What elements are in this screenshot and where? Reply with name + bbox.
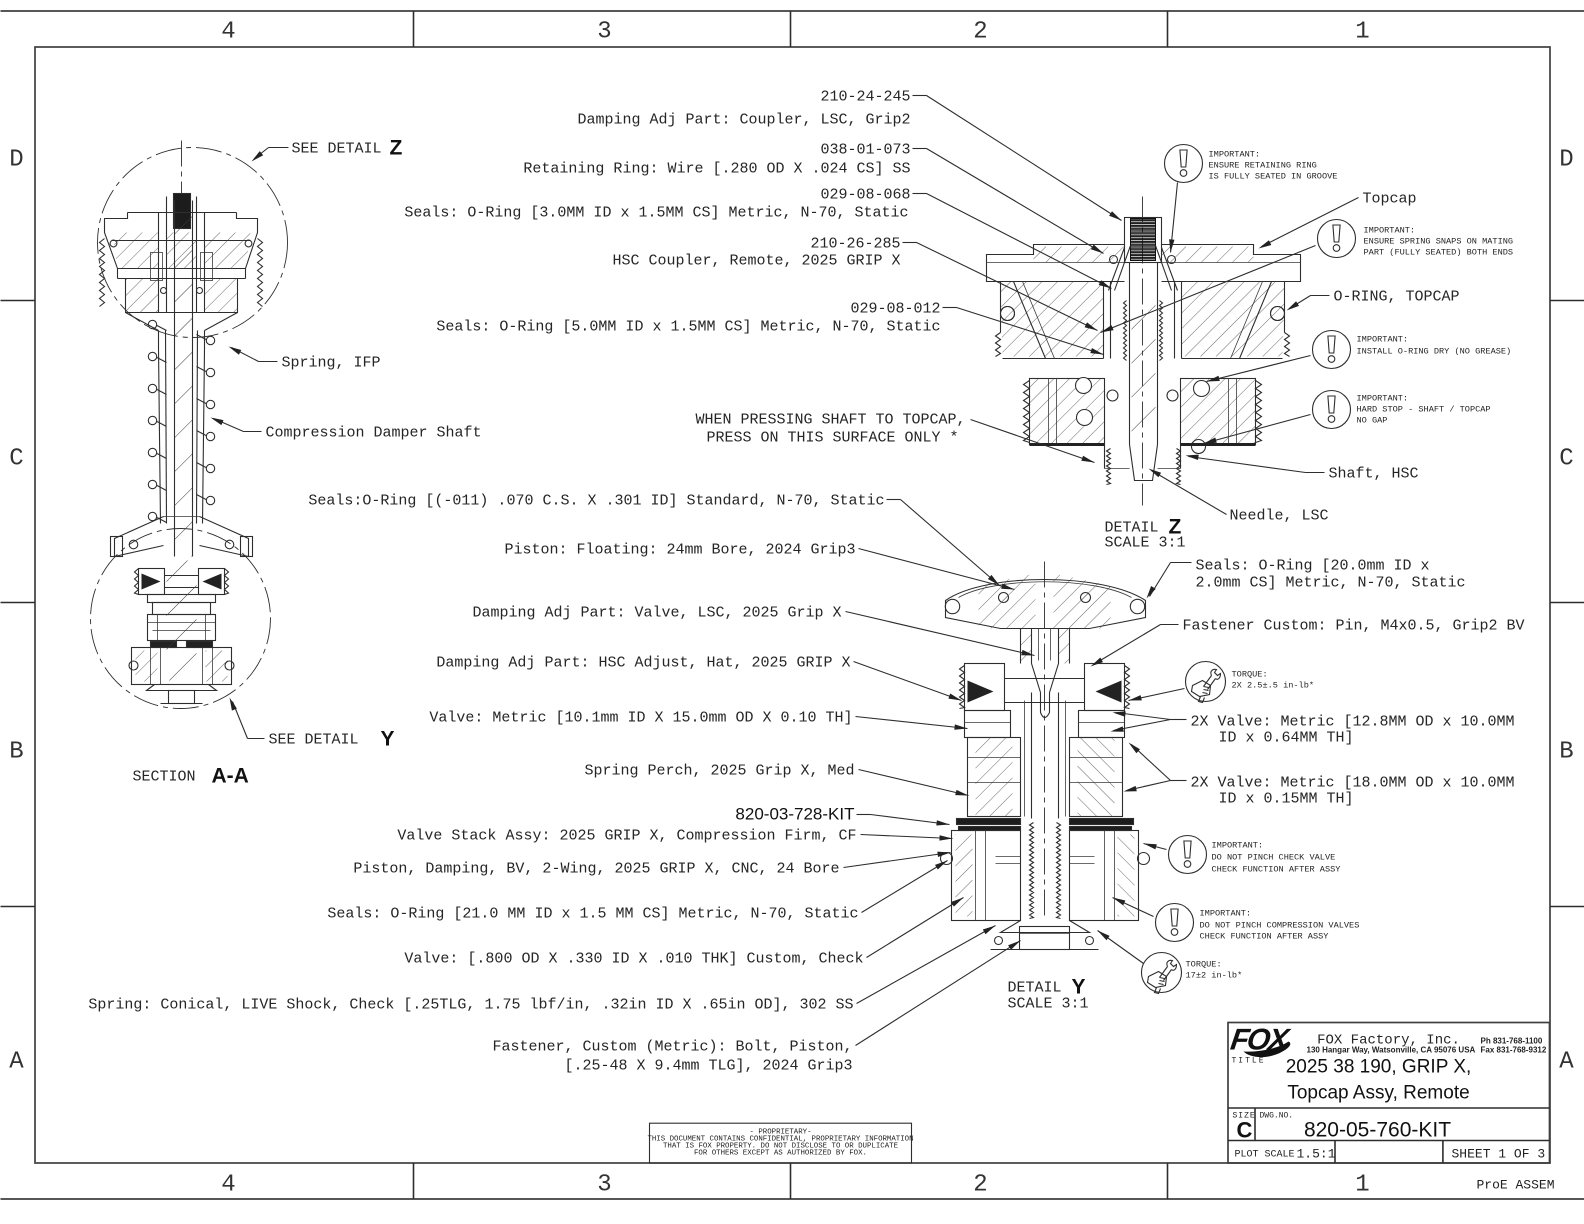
svg-text:NO GAP: NO GAP bbox=[1357, 416, 1388, 426]
svg-text:Damping Adj Part: HSC Adjust,: Damping Adj Part: HSC Adjust, Hat, 2025 … bbox=[436, 655, 850, 672]
svg-text:Fastener, Custom (Metric): Bol: Fastener, Custom (Metric): Bolt, Piston, bbox=[492, 1039, 852, 1056]
svg-text:INSTALL O-RING DRY (NO GREASE): INSTALL O-RING DRY (NO GREASE) bbox=[1357, 347, 1512, 357]
svg-text:C: C bbox=[1237, 1118, 1253, 1143]
svg-text:Valve: [.800 OD X .330 ID X .0: Valve: [.800 OD X .330 ID X .010 THK] Cu… bbox=[404, 951, 863, 968]
svg-text:038-01-073: 038-01-073 bbox=[820, 142, 910, 159]
svg-text:Seals: O-Ring [5.0MM ID x 1.5M: Seals: O-Ring [5.0MM ID x 1.5MM CS] Metr… bbox=[436, 319, 940, 336]
svg-text:2X Valve: Metric [18.0MM OD x: 2X Valve: Metric [18.0MM OD x 10.0MM bbox=[1191, 775, 1515, 792]
svg-text:PRESS ON THIS SURFACE ONLY *: PRESS ON THIS SURFACE ONLY * bbox=[706, 430, 958, 447]
svg-text:IMPORTANT:: IMPORTANT: bbox=[1357, 335, 1409, 345]
svg-text:17±2 in-lb*: 17±2 in-lb* bbox=[1186, 971, 1243, 981]
svg-text:Y: Y bbox=[381, 728, 395, 751]
svg-text:[.25-48 X 9.4mm TLG], 2024 Gri: [.25-48 X 9.4mm TLG], 2024 Grip3 bbox=[564, 1058, 852, 1075]
svg-text:IMPORTANT:: IMPORTANT: bbox=[1200, 909, 1252, 919]
svg-text:C: C bbox=[1559, 446, 1573, 473]
svg-text:Topcap: Topcap bbox=[1363, 191, 1417, 208]
svg-text:Fax 831-768-9312: Fax 831-768-9312 bbox=[1481, 1046, 1547, 1055]
svg-text:SECTION: SECTION bbox=[133, 769, 196, 786]
svg-text:210-24-245: 210-24-245 bbox=[820, 89, 910, 106]
svg-text:DETAIL: DETAIL bbox=[1008, 980, 1062, 997]
svg-text:Fastener Custom: Pin, M4x0.5,: Fastener Custom: Pin, M4x0.5, Grip2 BV bbox=[1183, 618, 1525, 635]
svg-text:Needle, LSC: Needle, LSC bbox=[1230, 508, 1329, 525]
svg-text:Retaining Ring: Wire [.280 OD: Retaining Ring: Wire [.280 OD X .024 CS]… bbox=[523, 161, 910, 178]
svg-text:SHEET 1 OF 3: SHEET 1 OF 3 bbox=[1452, 1147, 1546, 1162]
svg-text:D: D bbox=[9, 147, 23, 174]
svg-text:Spring Perch, 2025 Grip X, Med: Spring Perch, 2025 Grip X, Med bbox=[584, 763, 854, 780]
svg-text:DWG.NO.: DWG.NO. bbox=[1260, 1112, 1294, 1121]
svg-text:029-08-068: 029-08-068 bbox=[820, 187, 910, 204]
svg-text:HSC Coupler, Remote, 2025 GRIP: HSC Coupler, Remote, 2025 GRIP X bbox=[612, 253, 900, 270]
svg-text:Shaft, HSC: Shaft, HSC bbox=[1329, 466, 1419, 483]
svg-text:B: B bbox=[1559, 739, 1573, 766]
svg-text:B: B bbox=[9, 739, 23, 766]
svg-text:SEE DETAIL: SEE DETAIL bbox=[292, 141, 382, 158]
svg-text:4: 4 bbox=[221, 19, 235, 46]
svg-text:SCALE 3:1: SCALE 3:1 bbox=[1008, 996, 1089, 1013]
svg-text:1.5:1: 1.5:1 bbox=[1297, 1147, 1336, 1162]
svg-text:C: C bbox=[9, 446, 23, 473]
svg-text:ENSURE SPRING SNAPS ON MATING: ENSURE SPRING SNAPS ON MATING bbox=[1364, 237, 1514, 247]
svg-text:ID x 0.15MM TH]: ID x 0.15MM TH] bbox=[1219, 791, 1354, 808]
svg-text:Piston, Damping, BV, 2-Wing, 2: Piston, Damping, BV, 2-Wing, 2025 GRIP X… bbox=[353, 861, 839, 878]
svg-text:TORQUE:: TORQUE: bbox=[1186, 960, 1222, 970]
svg-text:IS FULLY SEATED IN GROOVE: IS FULLY SEATED IN GROOVE bbox=[1209, 172, 1338, 182]
svg-text:TITLE: TITLE bbox=[1232, 1057, 1266, 1066]
svg-text:2025 38 190, GRIP X,: 2025 38 190, GRIP X, bbox=[1286, 1057, 1472, 1078]
svg-text:DO NOT PINCH CHECK VALVE: DO NOT PINCH CHECK VALVE bbox=[1212, 853, 1336, 863]
svg-text:Seals: O-Ring [20.0mm ID x: Seals: O-Ring [20.0mm ID x bbox=[1196, 558, 1430, 575]
svg-text:A: A bbox=[9, 1049, 24, 1076]
svg-text:210-26-285: 210-26-285 bbox=[810, 236, 900, 253]
svg-text:2: 2 bbox=[973, 19, 987, 46]
svg-text:4: 4 bbox=[221, 1172, 235, 1199]
svg-text:Valve Stack Assy: 2025 GRIP X,: Valve Stack Assy: 2025 GRIP X, Compressi… bbox=[397, 828, 856, 845]
svg-text:CHECK FUNCTION AFTER ASSY: CHECK FUNCTION AFTER ASSY bbox=[1200, 932, 1329, 942]
svg-text:DO NOT PINCH COMPRESSION VALVE: DO NOT PINCH COMPRESSION VALVES bbox=[1200, 921, 1360, 931]
svg-text:820-05-760-KIT: 820-05-760-KIT bbox=[1304, 1119, 1451, 1142]
svg-text:1: 1 bbox=[1355, 1172, 1369, 1199]
svg-text:Spring: Conical, LIVE Shock, C: Spring: Conical, LIVE Shock, Check [.25T… bbox=[88, 997, 853, 1014]
svg-text:ID x 0.64MM TH]: ID x 0.64MM TH] bbox=[1219, 730, 1354, 747]
svg-text:D: D bbox=[1559, 147, 1573, 174]
svg-text:SEE DETAIL: SEE DETAIL bbox=[269, 732, 359, 749]
svg-text:WHEN PRESSING SHAFT TO TOPCAP,: WHEN PRESSING SHAFT TO TOPCAP, bbox=[695, 412, 965, 429]
svg-text:FOR OTHERS EXCEPT AS AUTHORIZE: FOR OTHERS EXCEPT AS AUTHORIZED BY FOX. bbox=[694, 1150, 867, 1158]
svg-text:IMPORTANT:: IMPORTANT: bbox=[1209, 150, 1261, 160]
svg-text:Spring, IFP: Spring, IFP bbox=[282, 355, 381, 372]
svg-text:SCALE 3:1: SCALE 3:1 bbox=[1105, 535, 1186, 552]
svg-text:Seals: O-Ring [3.0MM ID x 1.5M: Seals: O-Ring [3.0MM ID x 1.5MM CS] Metr… bbox=[404, 205, 908, 222]
svg-text:3: 3 bbox=[597, 1172, 611, 1199]
svg-text:820-03-728-KIT: 820-03-728-KIT bbox=[735, 805, 854, 824]
svg-text:Damping Adj Part: Coupler, LSC: Damping Adj Part: Coupler, LSC, Grip2 bbox=[577, 112, 910, 129]
svg-text:Seals: O-Ring [21.0 MM ID x 1.: Seals: O-Ring [21.0 MM ID x 1.5 MM CS] M… bbox=[327, 906, 858, 923]
svg-text:Compression Damper Shaft: Compression Damper Shaft bbox=[266, 425, 482, 442]
svg-text:A: A bbox=[1559, 1049, 1574, 1076]
svg-text:1: 1 bbox=[1355, 19, 1369, 46]
svg-text:3: 3 bbox=[597, 19, 611, 46]
svg-text:Topcap Assy, Remote: Topcap Assy, Remote bbox=[1287, 1083, 1469, 1104]
svg-text:Seals:O-Ring [(-011) .070 C.S.: Seals:O-Ring [(-011) .070 C.S. X .301 ID… bbox=[308, 493, 884, 510]
svg-text:PART (FULLY SEATED) BOTH ENDS: PART (FULLY SEATED) BOTH ENDS bbox=[1364, 248, 1514, 258]
svg-text:ProE ASSEM: ProE ASSEM bbox=[1477, 1178, 1555, 1193]
svg-text:TORQUE:: TORQUE: bbox=[1232, 670, 1268, 680]
svg-text:Ph 831-768-1100: Ph 831-768-1100 bbox=[1481, 1037, 1543, 1046]
svg-text:Z: Z bbox=[390, 137, 403, 160]
svg-text:O-RING, TOPCAP: O-RING, TOPCAP bbox=[1334, 289, 1460, 306]
svg-text:IMPORTANT:: IMPORTANT: bbox=[1364, 226, 1416, 236]
svg-text:2X 2.5±.5 in-lb*: 2X 2.5±.5 in-lb* bbox=[1232, 681, 1315, 691]
svg-text:Piston: Floating: 24mm Bore, 2: Piston: Floating: 24mm Bore, 2024 Grip3 bbox=[504, 542, 855, 559]
svg-text:PLOT SCALE: PLOT SCALE bbox=[1235, 1150, 1295, 1161]
svg-text:2.0mm CS] Metric, N-70, Static: 2.0mm CS] Metric, N-70, Static bbox=[1196, 575, 1466, 592]
svg-text:Valve: Metric [10.1mm ID X 15.: Valve: Metric [10.1mm ID X 15.0mm OD X 0… bbox=[429, 710, 852, 727]
svg-text:Damping Adj Part: Valve, LSC,: Damping Adj Part: Valve, LSC, 2025 Grip … bbox=[472, 605, 841, 622]
svg-text:HARD STOP - SHAFT / TOPCAP: HARD STOP - SHAFT / TOPCAP bbox=[1357, 405, 1491, 415]
svg-text:2X Valve: Metric [12.8MM OD x: 2X Valve: Metric [12.8MM OD x 10.0MM bbox=[1191, 714, 1515, 731]
svg-text:130 Hangar Way, Watsonville, C: 130 Hangar Way, Watsonville, CA 95076 US… bbox=[1307, 1046, 1476, 1055]
svg-text:2: 2 bbox=[973, 1172, 987, 1199]
svg-text:IMPORTANT:: IMPORTANT: bbox=[1357, 394, 1409, 404]
svg-text:029-08-012: 029-08-012 bbox=[850, 301, 940, 318]
svg-text:A-A: A-A bbox=[212, 765, 249, 788]
svg-text:CHECK FUNCTION AFTER ASSY: CHECK FUNCTION AFTER ASSY bbox=[1212, 865, 1341, 875]
svg-text:IMPORTANT:: IMPORTANT: bbox=[1212, 841, 1264, 851]
svg-text:ENSURE RETAINING RING: ENSURE RETAINING RING bbox=[1209, 161, 1317, 171]
